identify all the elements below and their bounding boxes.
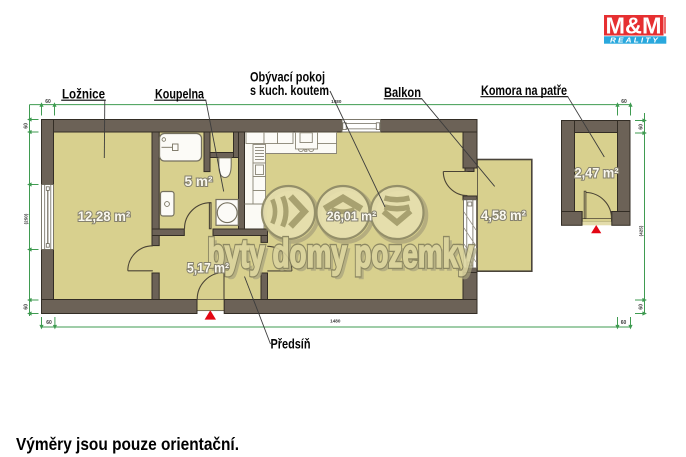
svg-text:(425): (425): [639, 225, 644, 236]
svg-text:byty domy pozemky: byty domy pozemky: [208, 232, 475, 276]
svg-text:Komora na patře: Komora na patře: [481, 82, 567, 98]
svg-text:1480: 1480: [330, 319, 341, 324]
svg-text:60: 60: [24, 123, 30, 129]
svg-text:4,58 m²: 4,58 m²: [481, 207, 526, 223]
svg-text:Ložnice: Ložnice: [62, 86, 105, 102]
svg-text:60: 60: [639, 124, 645, 130]
svg-text:60: 60: [639, 304, 645, 310]
svg-text:Předsíň: Předsíň: [271, 335, 311, 351]
svg-text:60: 60: [45, 99, 51, 105]
svg-text:60: 60: [24, 304, 30, 310]
svg-text:5 m²: 5 m²: [185, 173, 213, 189]
svg-text:Koupelna: Koupelna: [155, 86, 204, 102]
svg-text:60: 60: [621, 99, 627, 105]
svg-text:REALITY: REALITY: [610, 35, 660, 44]
svg-text:Výměry jsou pouze orientační.: Výměry jsou pouze orientační.: [16, 434, 239, 454]
svg-text:2,47 m²: 2,47 m²: [575, 164, 619, 180]
svg-text:12,28 m²: 12,28 m²: [78, 208, 131, 224]
svg-text:60: 60: [46, 320, 52, 326]
svg-text:s kuch. koutem: s kuch. koutem: [250, 82, 329, 98]
svg-text:(250): (250): [24, 213, 29, 224]
svg-text:5,17 m²: 5,17 m²: [187, 259, 229, 275]
svg-text:Balkon: Balkon: [384, 84, 421, 100]
svg-text:60: 60: [621, 320, 627, 326]
svg-text:26,01 m²: 26,01 m²: [327, 209, 377, 224]
svg-text:1480: 1480: [331, 99, 342, 104]
